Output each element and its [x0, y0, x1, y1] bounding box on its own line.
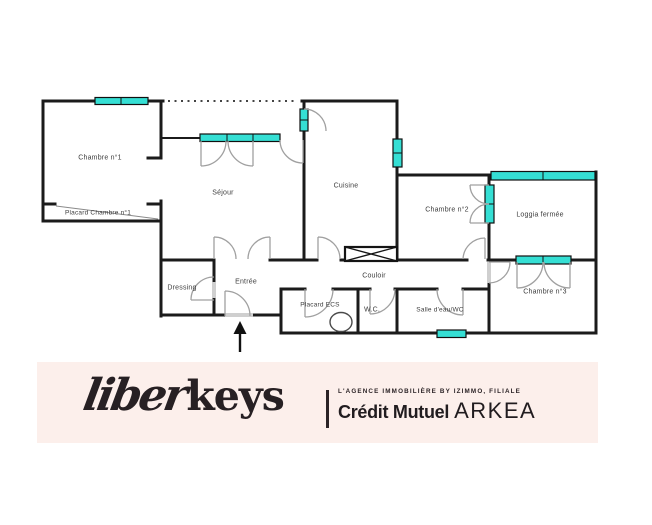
liberkeys-logo: liberkeys	[84, 370, 284, 421]
floor-plan-drawing	[0, 0, 652, 525]
entrance-arrow-icon	[234, 321, 247, 352]
room-label-chambre1: Chambre n°1	[78, 155, 122, 162]
room-label-placard-ecs: Placard ECS	[300, 302, 339, 309]
floor-plan-page: Chambre n°1 Placard Chambre n°1 Séjour C…	[0, 0, 652, 525]
room-label-cuisine: Cuisine	[334, 183, 359, 190]
walls	[43, 101, 596, 333]
room-label-wc: W.C.	[364, 307, 380, 314]
room-label-chambre2: Chambre n°2	[425, 207, 469, 214]
room-label-sejour: Séjour	[212, 190, 233, 197]
agency-tagline: L'AGENCE IMMOBILIÈRE BY IZIMMO, FILIALE	[338, 388, 521, 395]
room-label-chambre3: Chambre n°3	[523, 289, 567, 296]
room-label-dressing: Dressing	[167, 285, 196, 292]
credit-mutuel-arkea-logo: Crédit MutuelARKEA	[338, 398, 536, 424]
room-label-couloir: Couloir	[362, 273, 386, 280]
window-sejour	[200, 134, 280, 142]
brand-arkea: ARKEA	[454, 398, 536, 423]
duct-box	[345, 247, 397, 261]
room-label-salle-eau: Salle d'eau/WC	[416, 307, 463, 314]
logo-separator-bar	[326, 390, 329, 428]
water-heater-icon	[330, 313, 352, 332]
window-salle-eau	[437, 330, 466, 338]
brand-credit-mutuel: Crédit Mutuel	[338, 402, 449, 422]
room-label-placard-chambre1: Placard Chambre n°1	[65, 210, 131, 217]
room-label-entree: Entrée	[235, 279, 257, 286]
room-label-loggia: Loggia fermée	[516, 212, 563, 219]
footer-brand-band: liberkeys L'AGENCE IMMOBILIÈRE BY IZIMMO…	[37, 362, 598, 443]
logo-keys-text: keys	[186, 372, 283, 420]
logo-liber-text: liber	[80, 370, 189, 421]
